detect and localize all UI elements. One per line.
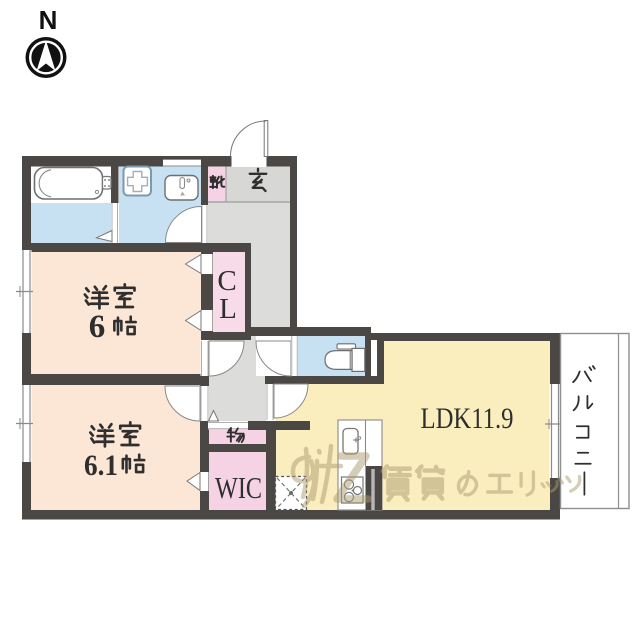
svg-text:N: N <box>39 5 58 35</box>
svg-text:LDK11.9: LDK11.9 <box>421 402 514 435</box>
svg-text:L: L <box>219 293 237 325</box>
svg-text:WIC: WIC <box>215 470 262 505</box>
svg-text:6.1: 6.1 <box>84 449 118 482</box>
svg-text:6: 6 <box>89 309 106 345</box>
